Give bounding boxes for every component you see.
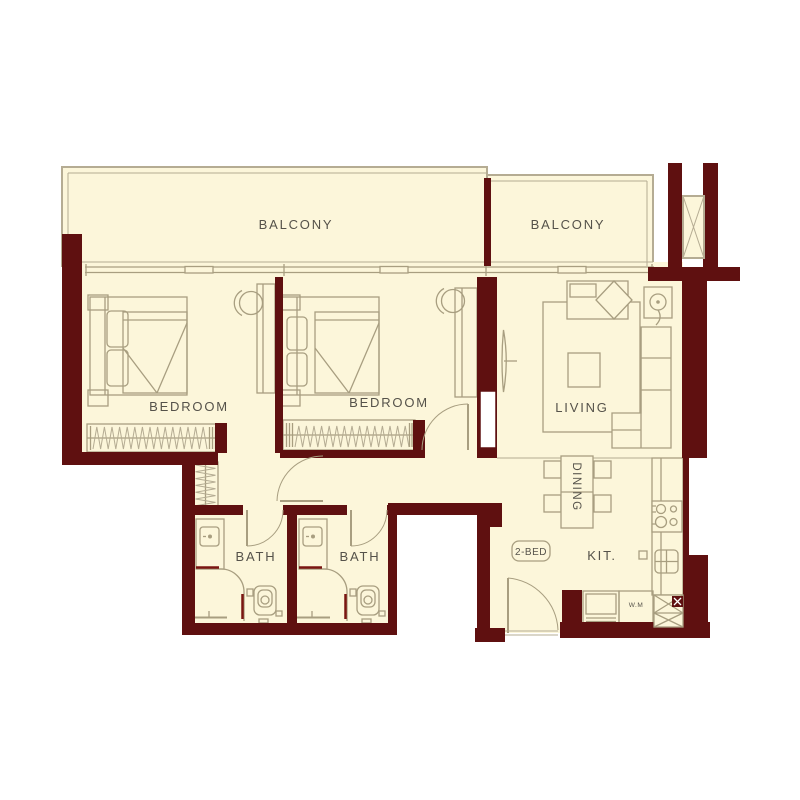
kitchen-shaft [654,595,683,627]
stove [652,501,682,532]
bath-1-label: BATH [236,549,277,564]
coffee-table [568,353,600,387]
bedroom-2-label: BEDROOM [349,395,429,410]
washing-machine-label: W.M [629,602,644,609]
bath-2-label: BATH [340,549,381,564]
bedroom-1-label: BEDROOM [149,399,229,414]
balcony-2-label: BALCONY [531,217,606,232]
wall-niche [480,391,496,448]
column-shaft [683,196,704,258]
floor-plan: BALCONY BALCONY BEDROOM BEDROOM LIVING D… [0,0,800,800]
kitchen-label: KIT. [587,548,617,563]
unit-type-label: 2-BED [515,547,547,558]
balcony-1-label: BALCONY [259,217,334,232]
dining-label: DINING [570,462,582,511]
living-label: LIVING [555,400,608,415]
floor-plan-canvas: BALCONY BALCONY BEDROOM BEDROOM LIVING D… [0,0,800,800]
